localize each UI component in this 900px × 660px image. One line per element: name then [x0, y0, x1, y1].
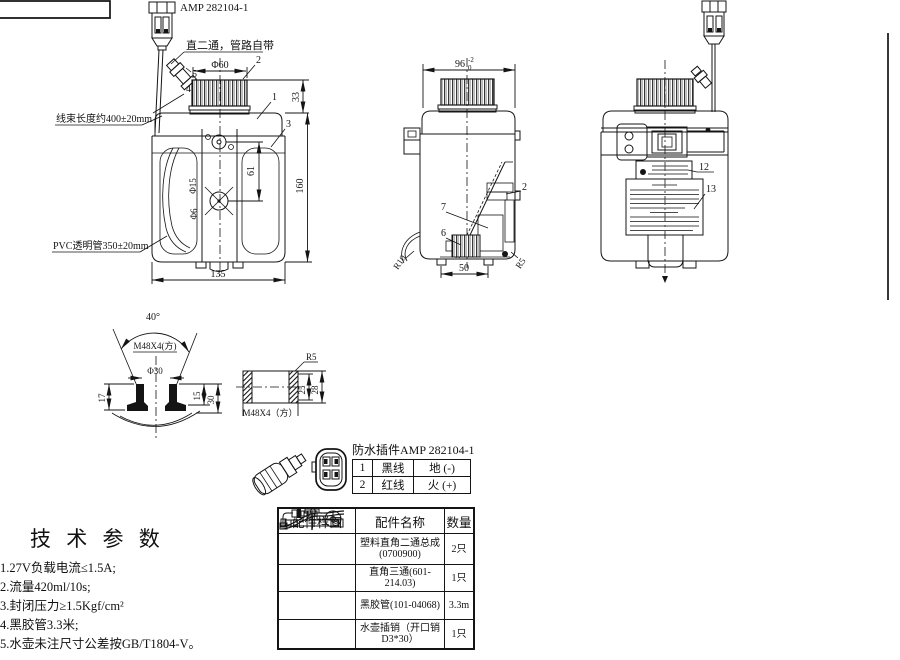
connector-table-title: 防水插件AMP 282104-1 — [352, 441, 472, 458]
sheet-border-fragment — [0, 1, 888, 300]
harness-length-label: 线束长度约400±20mm — [56, 112, 152, 125]
callout-12: 12 — [699, 162, 709, 173]
table-row: 1 黑线 地 (-) — [353, 460, 471, 477]
fitting-note: 直二通，管路自带 — [186, 38, 274, 52]
radius-left-label: R10 — [391, 253, 408, 271]
table-row: 2 红线 火 (+) — [353, 477, 471, 494]
side-view-drawing: 96 -2 0 — [391, 56, 528, 278]
callout-6: 6 — [441, 228, 446, 239]
part-name: 直角三通(601-214.03) — [356, 565, 445, 592]
rear-view-drawing: 12 13 — [601, 1, 728, 283]
part-name: 水壶插销（开口销 D3*30） — [356, 620, 445, 650]
cap-section-detail: R5 25 28 M48X4（方） — [236, 352, 326, 418]
table-row: 黑胶管(101-04068) 3.3m — [278, 592, 474, 620]
callout-13: 13 — [706, 184, 716, 195]
connector-part-number: AMP 282104-1 — [180, 2, 248, 14]
dim-side-width-tol-upper: -2 — [468, 56, 474, 64]
cap-radius-label: R5 — [306, 352, 317, 362]
wire-role: 地 (-) — [414, 460, 471, 477]
dim-side-width-tol-lower: 0 — [468, 64, 472, 72]
part-name: 黑胶管(101-04068) — [356, 592, 445, 620]
pin-number: 2 — [353, 477, 373, 494]
pvc-tube-label: PVC透明管350±20mm — [53, 239, 149, 252]
front-view-drawing: AMP 282104-1 直二通，管路自带 5 4 Φ60 2 — [52, 2, 312, 284]
dim-phi15: Φ15 — [188, 178, 198, 194]
part-qty: 1只 — [445, 620, 475, 650]
cad-drawing-sheet: AMP 282104-1 直二通，管路自带 5 4 Φ60 2 — [0, 0, 900, 660]
tee-fitting-icon — [278, 565, 356, 592]
tech-params-title: 技 术 参 数 — [30, 523, 260, 553]
part-qty: 1只 — [445, 565, 475, 592]
wire-color: 红线 — [373, 477, 414, 494]
table-row: 水壶插销（开口销 D3*30） 1只 — [278, 620, 474, 650]
tech-param-item: 1.27V负载电流≤1.5A; — [0, 559, 260, 578]
wire-role: 火 (+) — [414, 477, 471, 494]
dim-angle: 40° — [146, 312, 160, 323]
pin-number: 1 — [353, 460, 373, 477]
cotter-pin-icon — [278, 620, 356, 650]
knurled-cap — [189, 80, 250, 114]
dim-cap-25: 25 — [297, 385, 307, 395]
radius-right-label: R5 — [513, 256, 528, 271]
plug-side-view-icon — [250, 448, 310, 497]
wire-color: 黑线 — [373, 460, 414, 477]
tech-param-item: 2.流量420ml/10s; — [0, 578, 260, 597]
callout-7: 7 — [441, 202, 446, 213]
dim-bottom-span: 50 — [459, 263, 469, 274]
dim-neck-30: 30 — [206, 395, 216, 405]
plug-connector-icon — [149, 2, 175, 50]
plug-front-view-icon — [312, 449, 346, 490]
warning-label — [626, 179, 703, 235]
part-name: 塑料直角二通总成 (0700900) — [356, 534, 445, 565]
part-qty: 2只 — [445, 534, 475, 565]
tech-param-item: 5.水壶未注尺寸公差按GB/T1804-V。 — [0, 635, 260, 654]
header-name: 配件名称 — [356, 508, 445, 534]
tank-body-rear — [601, 111, 728, 283]
dim-body-width: 135 — [211, 269, 226, 280]
knurled-cap-side — [438, 79, 497, 112]
technical-parameters-panel: 技 术 参 数 1.27V负载电流≤1.5A; 2.流量420ml/10s; 3… — [0, 523, 260, 654]
parts-list-table: 配件样图 配件名称 数量 — [277, 507, 475, 650]
dim-side-width: 96 — [455, 59, 465, 70]
tank-body-side — [402, 111, 520, 265]
table-row: 直角三通(601-214.03) 1只 — [278, 565, 474, 592]
dim-phi6: Φ6 — [189, 208, 199, 220]
callout-2-side: 2 — [522, 182, 527, 193]
part-qty: 3.3m — [445, 592, 475, 620]
tech-param-item: 3.封闭压力≥1.5Kgf/cm² — [0, 597, 260, 616]
tank-body-front — [152, 113, 285, 272]
connector-pinout-table: 1 黑线 地 (-) 2 红线 火 (+) — [352, 459, 471, 494]
rubber-hose-icon — [278, 592, 356, 620]
connector-pinout-panel: 防水插件AMP 282104-1 1 黑线 地 (-) 2 红线 火 (+) — [352, 441, 472, 494]
elbow-assembly-icon — [278, 534, 356, 565]
dim-neck-bore: Φ30 — [147, 366, 163, 376]
dim-body-height: 160 — [295, 179, 306, 194]
name-plate-label — [636, 161, 692, 179]
dim-plate-span: 61 — [246, 166, 257, 176]
callout-1: 1 — [272, 92, 277, 103]
dim-cap-height: 33 — [291, 92, 302, 102]
dim-cap-28: 28 — [310, 385, 320, 395]
dim-neck-15: 15 — [192, 391, 202, 401]
dim-neck-17: 17 — [97, 393, 107, 403]
tech-param-item: 4.黑胶管3.3米; — [0, 616, 260, 635]
neck-thread-label: M48X4(方) — [134, 340, 177, 351]
plug-connector-rear-icon — [702, 1, 726, 44]
table-row: 塑料直角二通总成 (0700900) 2只 — [278, 534, 474, 565]
header-qty: 数量 — [445, 508, 475, 534]
parts-list-panel: 配件样图 配件名称 数量 — [277, 507, 475, 650]
cap-thread-label: M48X4（方） — [242, 407, 297, 418]
callout-2: 2 — [256, 55, 261, 66]
callout-4: 4 — [186, 84, 191, 95]
callout-3: 3 — [286, 119, 291, 130]
neck-section-detail: 40° M48X4(方) Φ30 17 15 30 — [97, 312, 222, 438]
